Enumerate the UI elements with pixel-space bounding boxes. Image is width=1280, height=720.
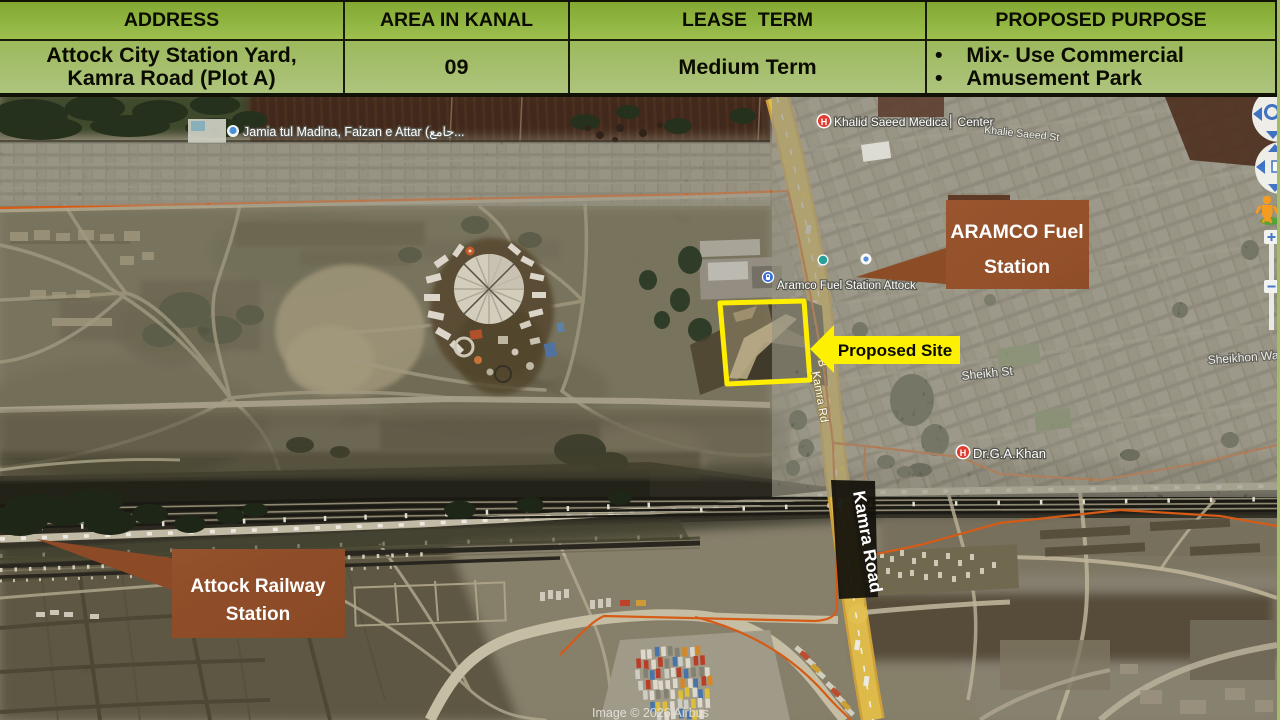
svg-text:Jamia tul Madina, Faizan e Att: Jamia tul Madina, Faizan e Attar (جامع..… [243,125,465,140]
svg-text:Dr.G.A.Khan: Dr.G.A.Khan [973,446,1046,461]
svg-text:Station: Station [226,604,290,625]
svg-text:H: H [821,117,828,127]
svg-text:Attock Railway: Attock Railway [190,576,326,597]
svg-text:Image © 2026 Airbus: Image © 2026 Airbus [592,706,709,720]
svg-text:Proposed Site: Proposed Site [838,341,952,360]
svg-text:Station: Station [984,256,1050,278]
svg-text:ARAMCO Fuel: ARAMCO Fuel [950,221,1083,243]
svg-text:H: H [960,448,967,458]
svg-text:Aramco Fuel Station Attock: Aramco Fuel Station Attock [777,280,916,292]
